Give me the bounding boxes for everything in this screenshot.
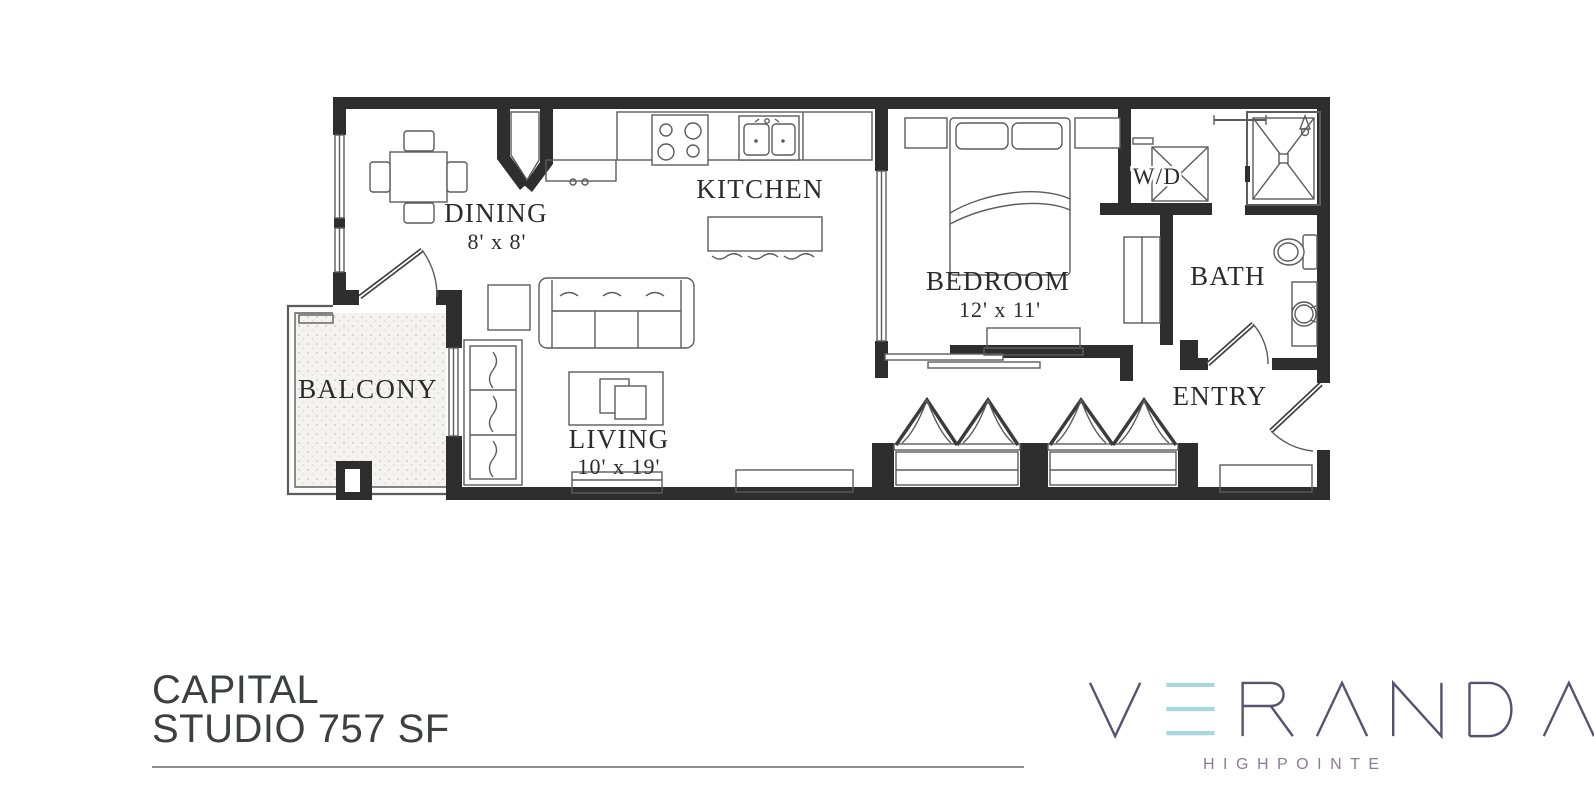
room-label-living: LIVING [569,424,670,454]
bed [950,118,1070,275]
linen-cabinet [1124,237,1160,323]
room-label-bath: BATH [1190,261,1266,291]
sofa [539,278,694,348]
brand-subtitle: HIGHPOINTE [1203,756,1388,774]
closet-bifold-doors [894,400,1178,450]
island-stools [712,254,814,259]
bath-door [1208,324,1268,364]
logo-letter-d [1470,683,1512,736]
plan-title-line1: CAPITAL [152,671,450,710]
pillow-right [1012,123,1062,149]
nightstand-right [1075,118,1120,148]
dining-chair-right [447,162,467,192]
nightstand-left [905,118,947,148]
room-dims-bedroom: 12' x 11' [959,297,1041,322]
brand-logo: HIGHPOINTE [1084,664,1594,784]
toilet [1274,235,1317,269]
dining-chair-bottom [404,203,434,223]
divider-line [152,766,1024,768]
room-label-kitchen: KITCHEN [696,174,824,204]
entry-door [1271,384,1321,451]
kitchen-sink [739,116,799,160]
kitchen-cabinet [546,160,616,181]
balcony-door [360,250,437,297]
logo-letter-a2 [1544,683,1594,736]
room-label-dining: DINING [444,198,548,228]
brand-wordmark [1084,664,1594,744]
logo-letter-n [1393,683,1441,736]
shelf-stub [1133,138,1153,144]
floorplan-page: DINING 8' x 8' KITCHEN LIVING 10' x 19' … [0,0,1594,786]
pillow-left [956,123,1008,149]
kitchen-island [708,217,822,251]
room-label-entry: ENTRY [1172,381,1267,411]
room-label-bedroom: BEDROOM [926,266,1070,296]
balcony-post-hole [345,469,360,492]
room-label-washer-dryer: W/D [1133,164,1182,189]
pantry-wall-left [497,109,529,190]
room-dims-living: 10' x 19' [578,454,661,479]
plan-title-line2: STUDIO 757 SF [152,710,450,749]
room-dims-dining: 8' x 8' [468,229,527,254]
shower [1245,112,1320,205]
bath-fixtures [1245,112,1320,346]
room-label-balcony: BALCONY [298,374,438,404]
logo-letter-a1 [1317,683,1367,736]
plan-title: CAPITAL STUDIO 757 SF [152,671,450,749]
bookshelf [464,340,522,485]
dining-chair-left [370,162,390,192]
logo-letter-e [1166,685,1214,733]
logo-letter-r [1243,683,1293,736]
vanity-sink [1292,282,1317,346]
doors [360,250,1321,451]
closet-rod [1214,115,1266,125]
dining-table [390,152,447,202]
logo-letter-v [1090,683,1140,736]
armchair [488,285,530,330]
tv-console [569,372,663,425]
dining-chair-top [404,131,434,151]
